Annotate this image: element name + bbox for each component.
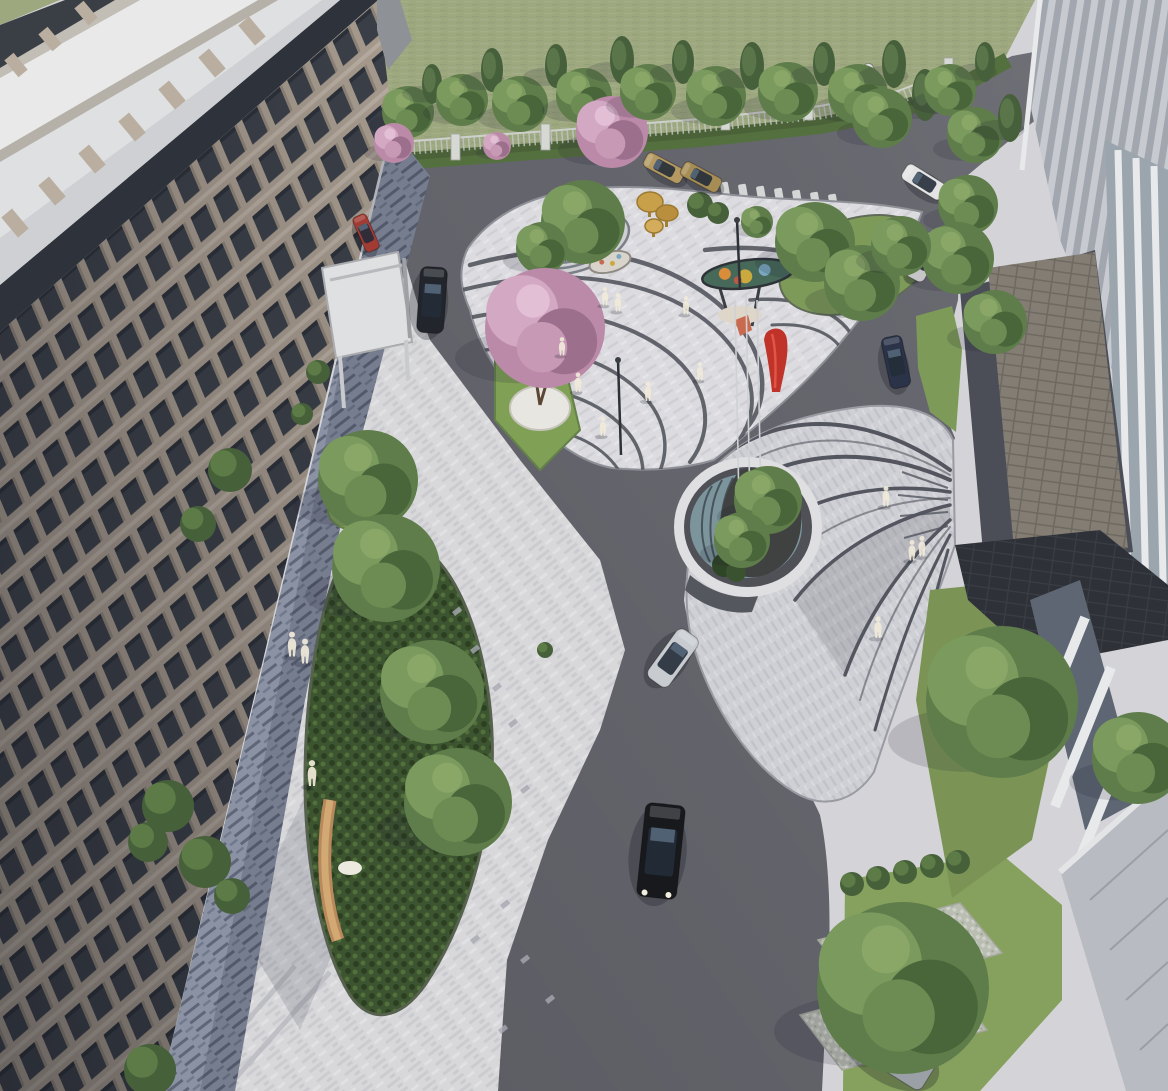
shrub xyxy=(214,878,250,914)
shrub xyxy=(180,506,216,542)
shrub xyxy=(866,866,890,890)
shrub xyxy=(208,448,252,492)
rendering-canvas xyxy=(0,0,1168,1091)
shrub xyxy=(920,854,944,878)
sculptural-seat xyxy=(338,861,362,875)
shrub xyxy=(128,822,168,862)
shrub xyxy=(179,836,231,888)
shrub xyxy=(946,850,970,874)
shrub xyxy=(707,202,729,224)
shrub xyxy=(537,642,553,658)
aerial-rendering xyxy=(0,0,1168,1091)
shrub xyxy=(306,360,330,384)
gravel-ring xyxy=(510,386,570,430)
shrub xyxy=(840,872,864,896)
shrub xyxy=(291,403,313,425)
shrub xyxy=(893,860,917,884)
